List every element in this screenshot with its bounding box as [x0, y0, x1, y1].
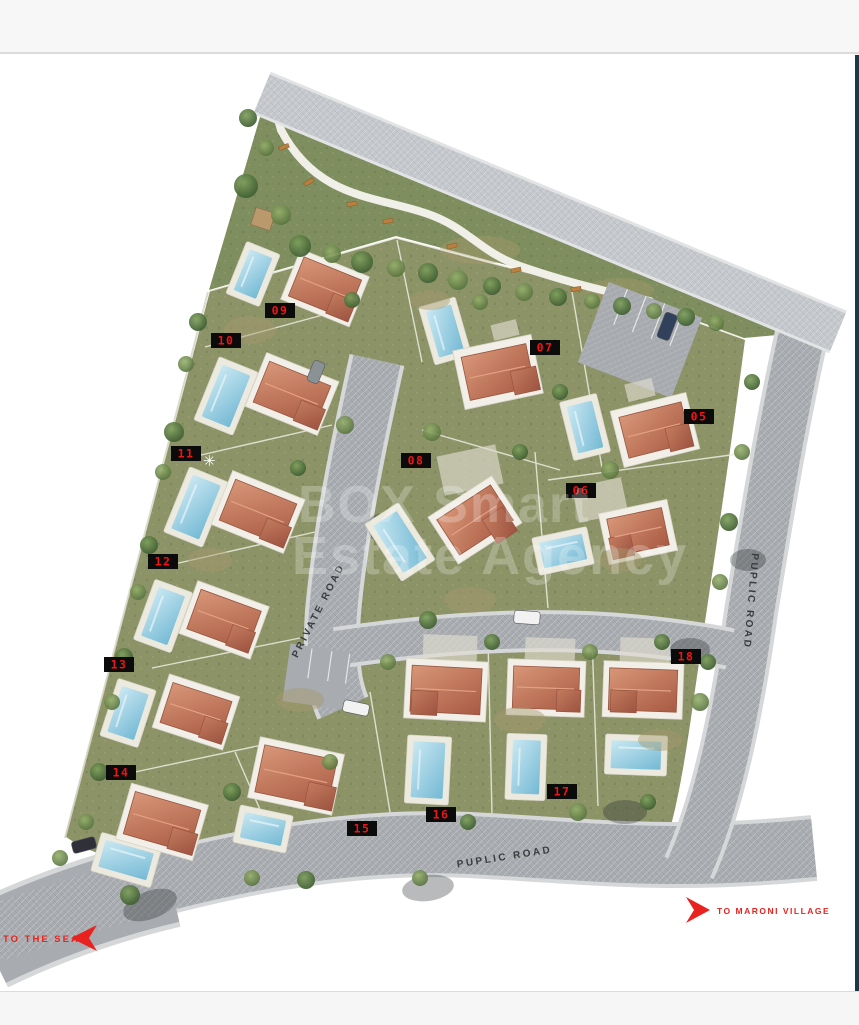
villa — [602, 661, 684, 720]
svg-text:09: 09 — [272, 304, 289, 318]
plot-label-15: 15 — [347, 821, 377, 836]
plot-label-16: 16 — [426, 807, 456, 822]
car — [514, 610, 541, 625]
svg-text:14: 14 — [113, 766, 130, 780]
svg-text:16: 16 — [433, 808, 450, 822]
svg-text:15: 15 — [354, 822, 371, 836]
site-plan-image: PRIVATE ROAD PUPLIC ROAD PUPLIC ROAD 05 … — [0, 0, 859, 1024]
right-arrow-icon — [686, 897, 710, 923]
to-the-sea-label: TO THE SEA — [3, 934, 80, 945]
plot-label-18: 18 — [671, 649, 701, 664]
plot-label-13: 13 — [104, 657, 134, 672]
plot-label-08: 08 — [401, 453, 431, 468]
plot-label-07: 07 — [530, 340, 560, 355]
pool — [404, 735, 451, 805]
svg-text:08: 08 — [408, 454, 425, 468]
to-maroni-village-label: TO MARONI VILLAGE — [717, 906, 830, 916]
watermark-line2: Estate Agency — [292, 526, 688, 586]
browser-chrome-top — [0, 0, 859, 54]
svg-text:11: 11 — [178, 447, 195, 461]
plot-label-14: 14 — [106, 765, 136, 780]
villa — [403, 658, 488, 722]
svg-text:17: 17 — [554, 785, 571, 799]
plot-label-10: 10 — [211, 333, 241, 348]
browser-chrome-bottom — [0, 991, 859, 1025]
sun-symbol-icon: ✳ — [203, 453, 216, 470]
svg-text:10: 10 — [218, 334, 235, 348]
plot-label-17: 17 — [547, 784, 577, 799]
page: { "window": { "top_bar_color": "#f7f7f7"… — [0, 0, 859, 1024]
direction-to-maroni: TO MARONI VILLAGE — [686, 897, 830, 923]
svg-text:18: 18 — [678, 650, 695, 664]
svg-text:12: 12 — [155, 555, 172, 569]
plot-label-11: 11 — [171, 446, 201, 461]
page-edge-strip — [855, 55, 859, 991]
svg-text:07: 07 — [537, 341, 554, 355]
plot-label-05: 05 — [684, 409, 714, 424]
svg-text:05: 05 — [691, 410, 708, 424]
svg-text:13: 13 — [111, 658, 128, 672]
plot-label-09: 09 — [265, 303, 295, 318]
plot-label-12: 12 — [148, 554, 178, 569]
pool — [505, 733, 547, 800]
